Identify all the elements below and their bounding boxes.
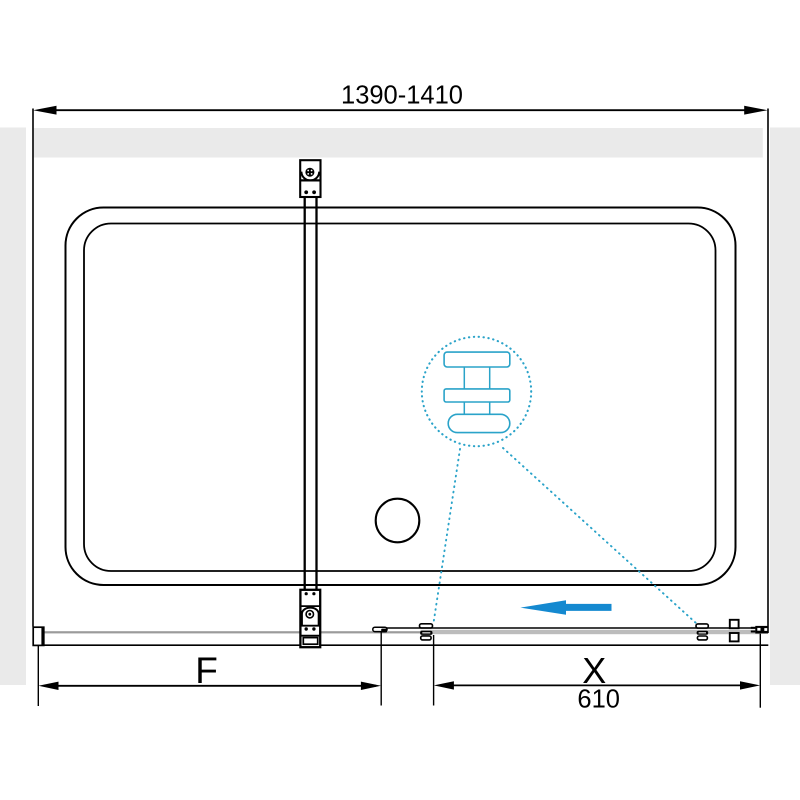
svg-text:F: F bbox=[195, 650, 218, 691]
svg-text:610: 610 bbox=[577, 686, 620, 714]
svg-text:1390-1410: 1390-1410 bbox=[341, 81, 463, 109]
